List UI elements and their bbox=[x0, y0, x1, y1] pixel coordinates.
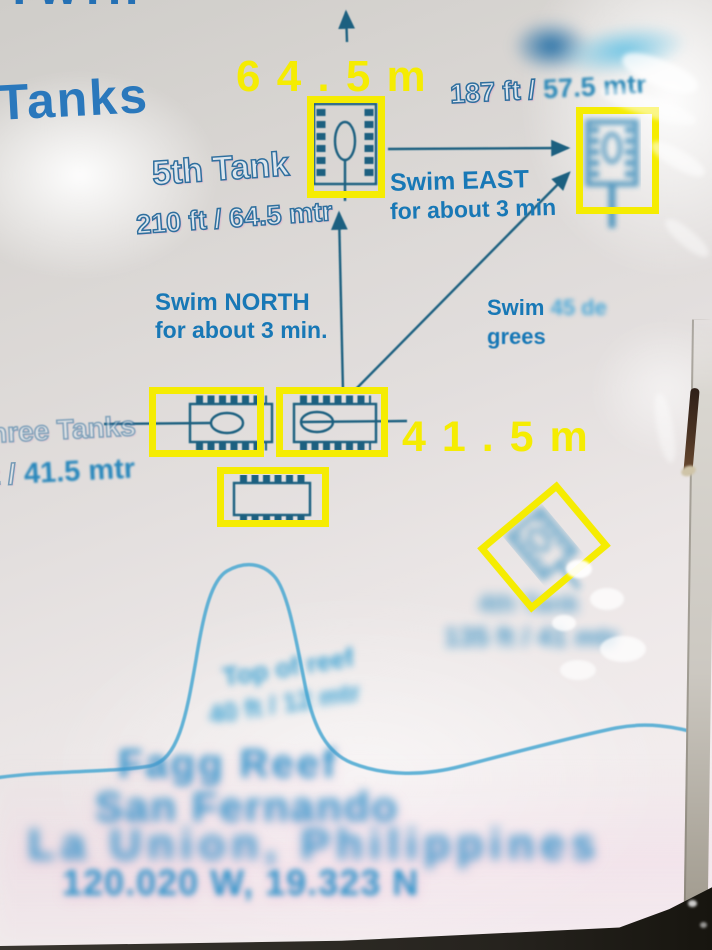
three-tanks-depth-value: 41.5 mtr bbox=[23, 452, 136, 490]
swim-north-label-2: for about 3 min. bbox=[155, 317, 328, 344]
depth-annotation-415: 4 1 . 5 m bbox=[402, 413, 590, 462]
swim-east-arrow bbox=[388, 148, 568, 149]
swim-north-arrow bbox=[339, 213, 343, 391]
annotation-box-bottom-tank bbox=[217, 467, 329, 527]
swim-45deg-smudged: 45 de bbox=[551, 295, 607, 320]
tank4-smudge-line2: 135 ft / 41 mtr bbox=[444, 622, 618, 653]
dive-map-sign-photo: Twin Tanks 187 ft / 57.5 mtr 5th Tank 21… bbox=[0, 0, 712, 950]
sign-title: Tanks bbox=[0, 66, 150, 132]
clipped-top-word: Twin bbox=[4, 0, 146, 16]
north-continuation-arrow bbox=[346, 12, 347, 42]
tank6-depth-prefix: 187 ft / bbox=[449, 74, 543, 109]
annotation-box-5th-tank bbox=[307, 96, 385, 198]
swim-45deg-label-1: Swim 45 de bbox=[487, 295, 607, 321]
three-tanks-depth-prefix: 135 ft / bbox=[0, 458, 25, 495]
annotation-box-left-tank bbox=[149, 387, 264, 457]
tank6-depth-smudged: 57.5 mtr bbox=[542, 69, 647, 104]
swim-45deg-word: Swim bbox=[487, 295, 544, 320]
swim-east-label-1: Swim EAST bbox=[390, 165, 530, 198]
depth-annotation-645: 6 4 . 5 m bbox=[236, 52, 428, 102]
swim-east-label-2: for about 3 min bbox=[390, 194, 557, 225]
site-reef-name: Fagg Reef bbox=[118, 742, 338, 787]
annotation-box-6th-tank bbox=[576, 107, 659, 214]
swim-north-label-1: Swim NORTH bbox=[155, 289, 310, 317]
swim-45deg-label-2: grees bbox=[487, 324, 546, 350]
annotation-box-middle-tank bbox=[276, 387, 388, 457]
site-coordinates: 120.020 W, 19.323 N bbox=[62, 862, 419, 904]
